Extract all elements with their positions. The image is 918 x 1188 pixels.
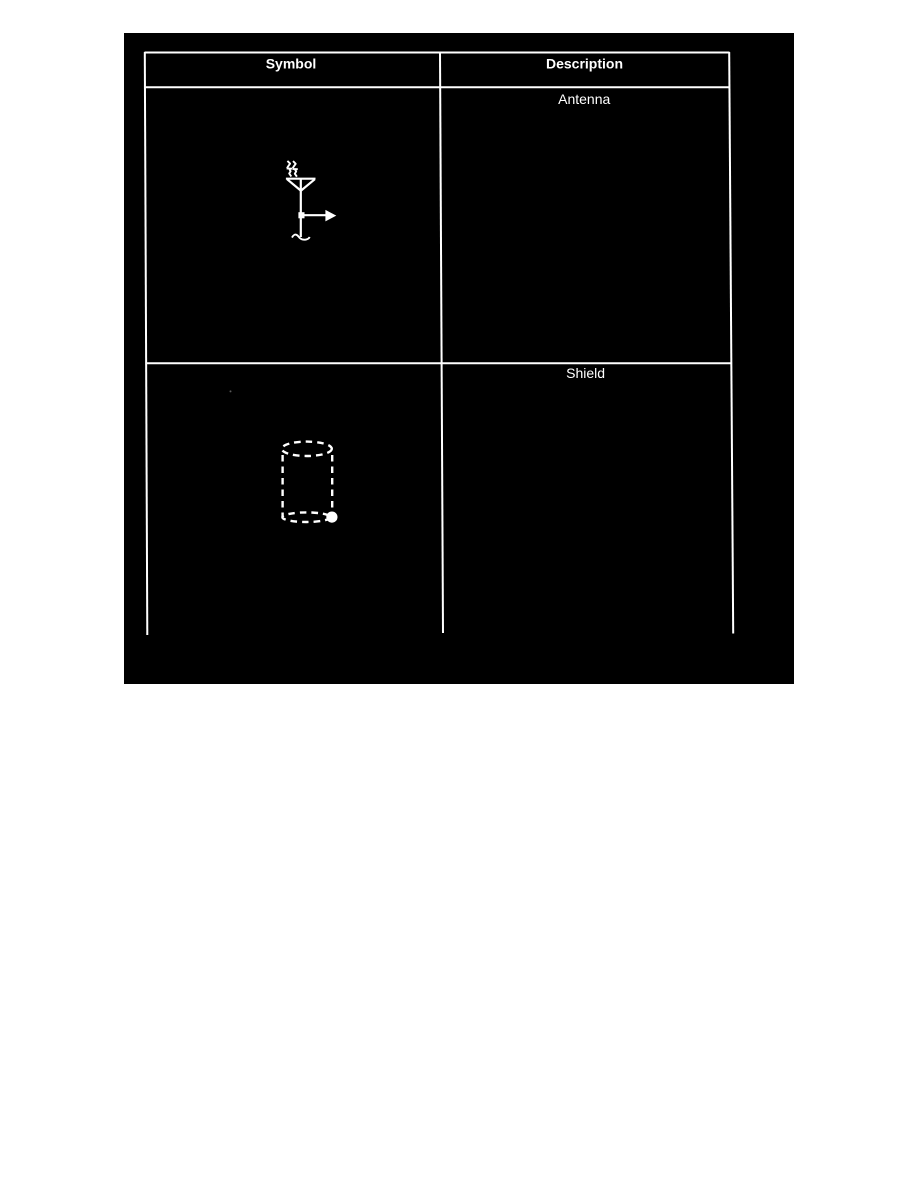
svg-text:Description: Description [546,56,623,72]
svg-text:Shield: Shield [566,365,605,381]
svg-text:Antenna: Antenna [558,91,610,107]
svg-text:Symbol: Symbol [266,56,317,72]
